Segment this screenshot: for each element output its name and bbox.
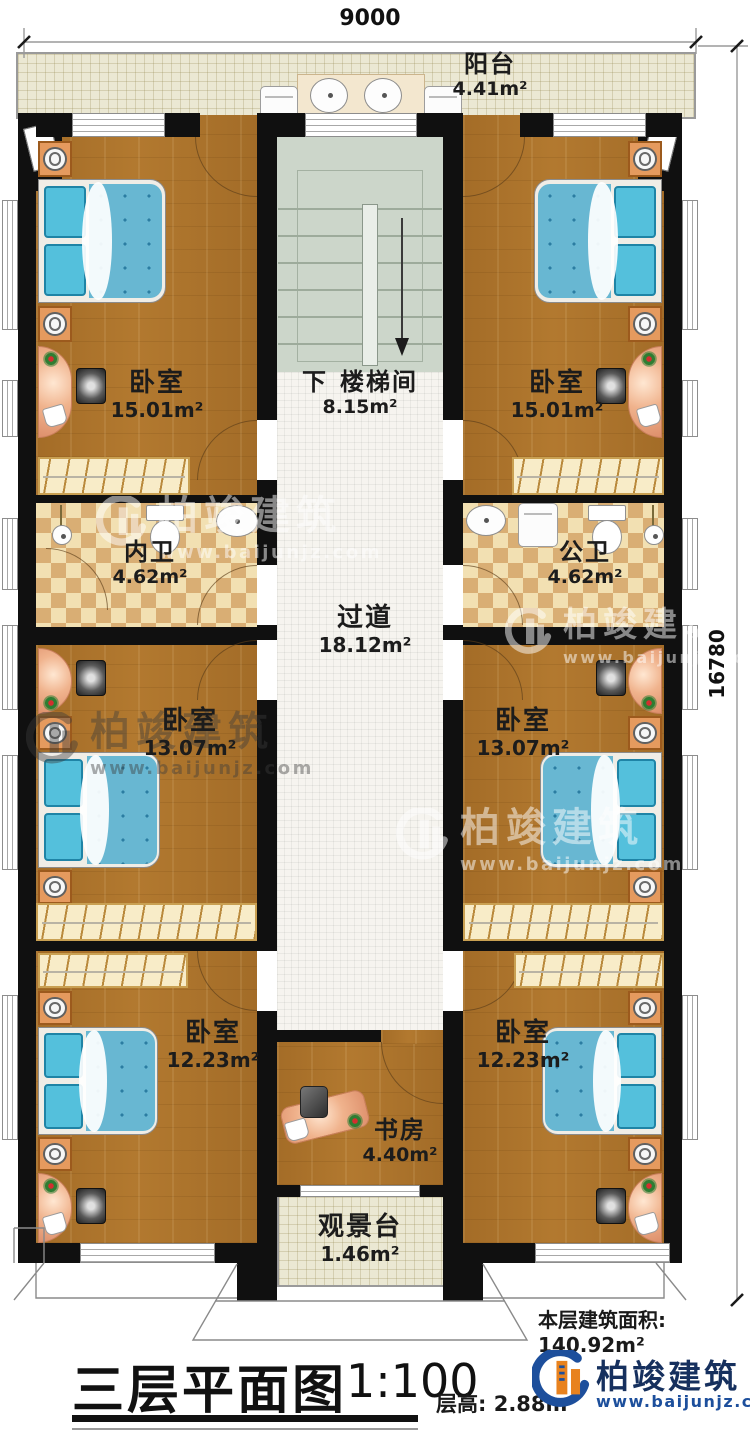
room-label-bedroom-bottom-left: 卧室 12.23m² <box>148 1018 278 1072</box>
balcony-basin-icon <box>310 78 348 113</box>
wall <box>36 113 72 137</box>
sink-icon <box>466 505 506 536</box>
room-label-bedroom-bottom-right: 卧室 12.23m² <box>458 1018 588 1072</box>
lamp-icon <box>633 997 657 1020</box>
room-label-view-deck: 观景台 1.46m² <box>300 1212 420 1266</box>
plant-icon <box>640 694 658 712</box>
wall <box>520 113 553 137</box>
wall <box>257 113 277 420</box>
lamp-icon <box>43 147 67 171</box>
lamp-icon <box>633 722 657 745</box>
sink-icon <box>216 505 258 537</box>
bed-pillows <box>617 759 657 862</box>
nightstand <box>628 870 662 904</box>
lamp-icon <box>633 876 657 899</box>
tv-icon <box>76 1188 106 1224</box>
pendant-lamp-cord <box>60 505 62 527</box>
lamp-icon <box>633 147 657 171</box>
page-title: 三层平面图 <box>72 1348 347 1423</box>
bed-sheet <box>80 755 109 864</box>
tv-icon <box>596 660 626 696</box>
room-label-corridor: 过道 18.12m² <box>300 603 430 657</box>
nightstand <box>628 1137 662 1171</box>
wall <box>463 941 664 951</box>
room-label-bedroom-mid-right: 卧室 13.07m² <box>458 706 588 760</box>
wall <box>257 625 277 640</box>
floor-plan-canvas: 柏竣建筑www.baijunjz.com 柏竣建筑www.baijunjz.co… <box>0 0 750 1438</box>
nightstand <box>628 991 662 1025</box>
window-right <box>682 625 698 710</box>
window-right <box>682 200 698 330</box>
wall <box>443 625 463 640</box>
wall <box>36 495 257 503</box>
nightstand <box>38 306 72 342</box>
wall <box>646 113 682 137</box>
window-bottom-right <box>535 1243 670 1263</box>
wall <box>257 1185 300 1197</box>
pendant-lamp-icon <box>644 525 664 545</box>
window-left <box>2 995 18 1140</box>
wall <box>443 1243 535 1263</box>
room-corridor-floor <box>277 372 443 1030</box>
wall <box>664 113 682 1263</box>
wall <box>277 1030 381 1042</box>
wall <box>670 1243 682 1263</box>
floor-area-label: 本层建筑面积: <box>538 1308 666 1332</box>
lamp-icon <box>43 876 67 899</box>
bed-pillows <box>44 1033 83 1128</box>
stair-down-label: 下 <box>302 368 326 396</box>
lamp-icon <box>43 997 67 1020</box>
window-balcony-left <box>72 113 165 137</box>
bed-pillows <box>44 186 86 296</box>
room-label-bedroom-mid-left: 卧室 13.07m² <box>125 706 255 760</box>
plant-icon <box>42 694 60 712</box>
dimension-right: 16780 <box>705 619 729 709</box>
bed <box>540 752 662 868</box>
title-underline <box>72 1415 418 1422</box>
room-label-bathroom-inner: 内卫 4.62m² <box>95 538 205 589</box>
nightstand <box>38 716 72 750</box>
wall <box>36 941 257 951</box>
wall <box>420 1185 463 1197</box>
wardrobe <box>38 953 188 988</box>
stair-walk-line <box>401 218 403 338</box>
wardrobe <box>36 903 257 941</box>
nightstand <box>628 716 662 750</box>
wall <box>257 480 277 565</box>
wall <box>443 113 463 420</box>
window-right <box>682 380 698 437</box>
window-left <box>2 755 18 870</box>
wall <box>165 113 200 137</box>
window-right <box>682 755 698 870</box>
window-left <box>2 200 18 330</box>
window-left <box>2 518 18 590</box>
room-label-bedroom-top-left: 卧室 15.01m² <box>92 368 222 422</box>
plant-icon <box>640 1177 658 1195</box>
window-left <box>2 380 18 437</box>
toilet-icon <box>146 505 184 521</box>
stair-rail <box>362 204 378 366</box>
room-label-balcony: 阳台 4.41m² <box>420 50 560 101</box>
window-view-deck-door <box>300 1185 420 1197</box>
wall-deck-pier-right <box>443 1263 483 1301</box>
bed <box>38 1027 158 1135</box>
bed <box>534 179 662 303</box>
room-label-bathroom-public: 公卫 4.62m² <box>530 538 640 589</box>
bed-sheet <box>79 1030 107 1132</box>
bed <box>38 179 166 303</box>
wall <box>215 1243 277 1263</box>
tv-icon <box>76 660 106 696</box>
wardrobe <box>38 457 190 495</box>
desk-chair-icon <box>300 1086 328 1118</box>
stair-down-arrow-icon <box>395 338 409 356</box>
floor-height-label: 层高: <box>436 1392 486 1416</box>
toilet-icon <box>588 505 626 521</box>
title-underline-thin <box>72 1428 418 1430</box>
lamp-icon <box>633 312 657 336</box>
stair-steps <box>278 208 442 368</box>
company-logo-icon <box>532 1350 590 1408</box>
pendant-lamp-cord <box>652 505 654 527</box>
tv-icon <box>596 1188 626 1224</box>
bed-sheet <box>82 182 112 299</box>
bed-pillows <box>44 759 84 862</box>
window-right <box>682 518 698 590</box>
room-label-bedroom-top-right: 卧室 15.01m² <box>492 368 622 422</box>
wardrobe <box>514 953 664 988</box>
wall-deck-pier-left <box>237 1263 277 1301</box>
wall <box>18 1243 80 1263</box>
company-website: www.baijunjz.com <box>596 1392 750 1411</box>
balcony-basin-icon <box>364 78 402 113</box>
bed <box>38 752 160 868</box>
lamp-icon <box>633 1143 657 1166</box>
window-right <box>682 995 698 1140</box>
nightstand <box>38 1137 72 1171</box>
window-balcony-right <box>553 113 646 137</box>
company-logo <box>532 1350 590 1412</box>
bed-pillows <box>614 186 656 296</box>
lamp-icon <box>43 722 67 745</box>
lamp-icon <box>43 1143 67 1166</box>
lamp-icon <box>43 312 67 336</box>
plant-icon <box>640 350 658 368</box>
bed-pillows <box>617 1033 656 1128</box>
nightstand <box>38 141 72 177</box>
wall <box>463 627 664 645</box>
window-stairwell <box>305 113 417 137</box>
company-name: 柏竣建筑 <box>596 1350 740 1398</box>
room-label-stairwell: 下楼梯间 8.15m² <box>275 368 445 419</box>
nightstand <box>38 991 72 1025</box>
plant-icon <box>42 350 60 368</box>
wall <box>36 627 257 645</box>
wall <box>463 495 664 503</box>
nightstand <box>628 141 662 177</box>
wall <box>257 700 277 951</box>
wardrobe <box>463 903 664 941</box>
nightstand <box>628 306 662 342</box>
room-label-study: 书房 4.40m² <box>345 1116 455 1167</box>
dimension-top: 9000 <box>330 6 410 31</box>
wardrobe <box>512 457 664 495</box>
nightstand <box>38 870 72 904</box>
wall <box>18 113 36 1263</box>
window-bottom-left <box>80 1243 215 1263</box>
bed-sheet <box>593 1030 621 1132</box>
pendant-lamp-icon <box>52 525 72 545</box>
plant-icon <box>42 1177 60 1195</box>
window-left <box>2 625 18 710</box>
wall <box>443 480 463 565</box>
